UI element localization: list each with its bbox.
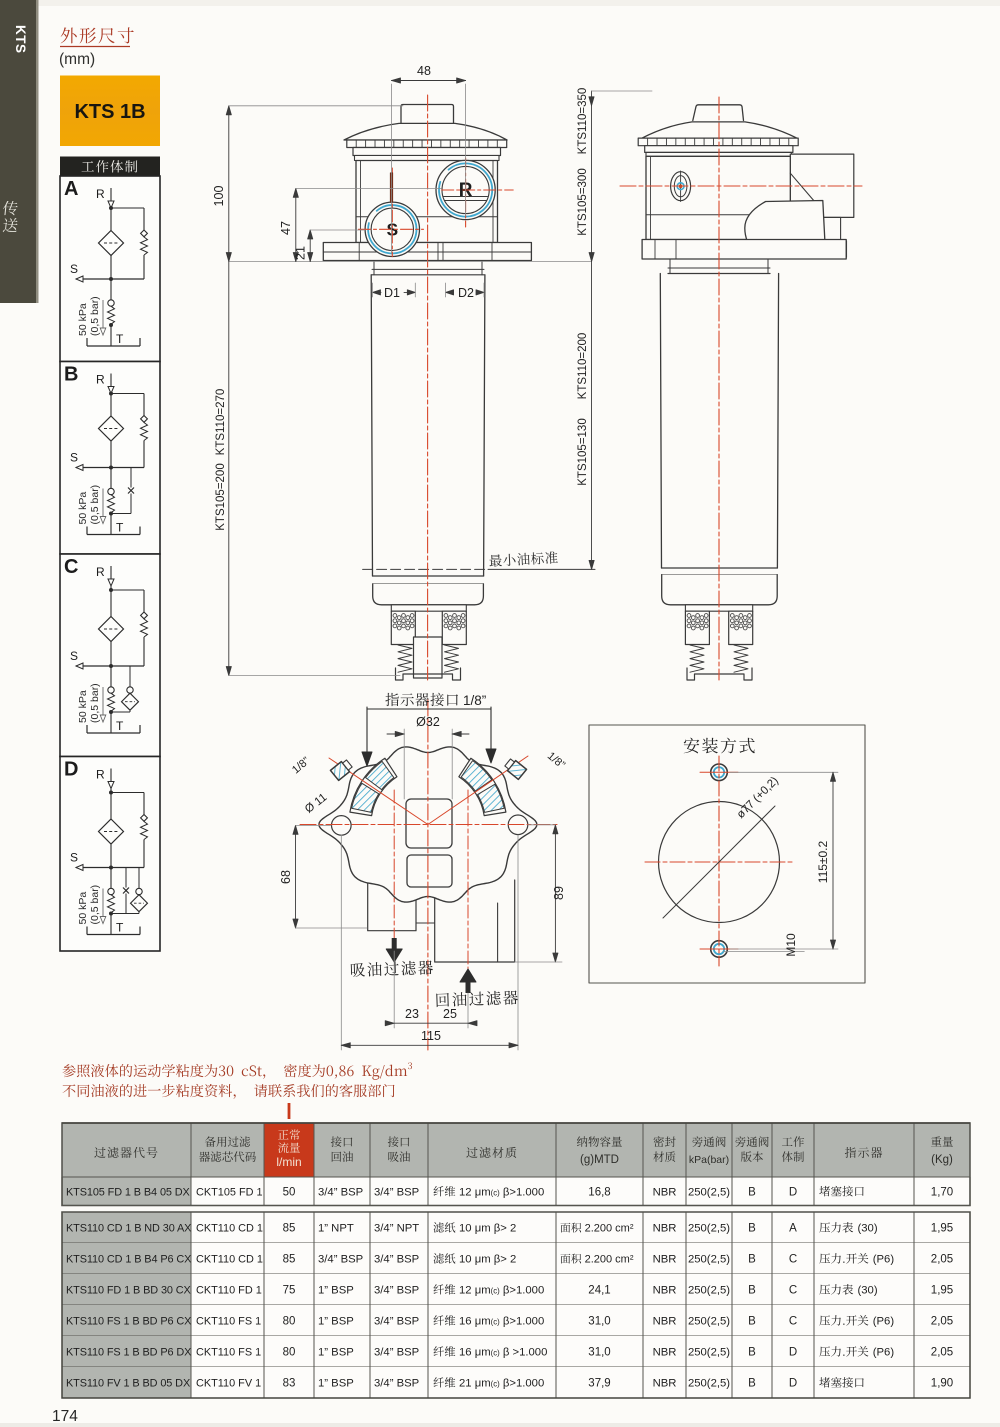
svg-text:(0,5 bar): (0,5 bar) — [89, 296, 101, 336]
svg-text:48: 48 — [417, 64, 431, 78]
svg-text:1” BSP: 1” BSP — [318, 1347, 354, 1359]
svg-text:80: 80 — [283, 1347, 296, 1359]
svg-text:1,90: 1,90 — [931, 1378, 953, 1390]
svg-text:250(2,5): 250(2,5) — [688, 1254, 730, 1266]
svg-text:C: C — [789, 1316, 797, 1328]
svg-text:1” BSP: 1” BSP — [318, 1316, 354, 1328]
svg-text:KTS110 FS 1 B BD P6 DX: KTS110 FS 1 B BD P6 DX — [66, 1347, 192, 1359]
svg-text:NBR: NBR — [653, 1223, 677, 1235]
svg-text:100: 100 — [212, 186, 226, 207]
svg-text:250(2,5): 250(2,5) — [688, 1316, 730, 1328]
svg-text:50 kPa: 50 kPa — [77, 690, 89, 723]
svg-text:3/4” BSP: 3/4” BSP — [374, 1285, 419, 1297]
svg-text:S: S — [70, 262, 78, 276]
svg-text:1” BSP: 1” BSP — [318, 1378, 354, 1390]
svg-text:D: D — [789, 1186, 797, 1198]
svg-text:250(2,5): 250(2,5) — [688, 1378, 730, 1390]
svg-text:(Kg): (Kg) — [931, 1154, 953, 1166]
svg-text:16,8: 16,8 — [588, 1186, 610, 1198]
svg-text:174: 174 — [52, 1408, 78, 1425]
svg-text:B: B — [748, 1316, 756, 1328]
svg-text:CKT110 CD 1: CKT110 CD 1 — [196, 1223, 263, 1235]
svg-text:3/4” BSP: 3/4” BSP — [374, 1186, 419, 1198]
svg-text:85: 85 — [283, 1223, 296, 1235]
svg-text:250(2,5): 250(2,5) — [688, 1347, 730, 1359]
svg-text:85: 85 — [283, 1254, 296, 1266]
svg-text:KTS 1B: KTS 1B — [74, 101, 145, 123]
svg-text:25: 25 — [443, 1007, 457, 1021]
svg-text:kPa(bar): kPa(bar) — [689, 1154, 729, 1166]
svg-text:21: 21 — [294, 246, 308, 260]
svg-text:R: R — [96, 373, 105, 387]
svg-text:(30): (30) — [858, 1285, 878, 1297]
svg-text:3/4” NPT: 3/4” NPT — [374, 1223, 419, 1235]
svg-text:12 μm(c) β>1.000: 12 μm(c) β>1.000 — [459, 1285, 544, 1297]
svg-text:(0,5 bar): (0,5 bar) — [89, 885, 101, 925]
svg-text:C: C — [64, 556, 78, 578]
svg-text:C: C — [789, 1285, 797, 1297]
svg-text:NBR: NBR — [653, 1285, 677, 1297]
svg-text:2,05: 2,05 — [931, 1254, 953, 1266]
svg-text:3/4” BSP: 3/4” BSP — [374, 1316, 419, 1328]
svg-text:NBR: NBR — [653, 1316, 677, 1328]
svg-text:50: 50 — [283, 1186, 296, 1198]
svg-text:KTS110=350: KTS110=350 — [577, 88, 589, 155]
svg-text:CKT105 FD 1: CKT105 FD 1 — [196, 1186, 263, 1198]
svg-text:D: D — [789, 1378, 797, 1390]
svg-text:(0,5 bar): (0,5 bar) — [89, 485, 101, 525]
svg-text:KTS105=130: KTS105=130 — [577, 418, 589, 485]
svg-text:Ø32: Ø32 — [416, 715, 440, 729]
svg-text:B: B — [748, 1378, 756, 1390]
svg-text:10 μm β> 2: 10 μm β> 2 — [459, 1223, 516, 1235]
svg-text:CKT110 FV 1: CKT110 FV 1 — [196, 1378, 261, 1390]
svg-text:3/4” BSP: 3/4” BSP — [318, 1186, 363, 1198]
svg-text:KTS105 FD 1 B B4 05 DX: KTS105 FD 1 B B4 05 DX — [66, 1186, 191, 1198]
svg-text:10 μm β> 2: 10 μm β> 2 — [459, 1254, 516, 1266]
svg-text:CKT110 CD 1: CKT110 CD 1 — [196, 1254, 263, 1266]
svg-text:31,0: 31,0 — [588, 1347, 610, 1359]
svg-text:3/4” BSP: 3/4” BSP — [318, 1254, 363, 1266]
svg-text:250(2,5): 250(2,5) — [688, 1285, 730, 1297]
svg-text:2,05: 2,05 — [931, 1347, 953, 1359]
svg-text:3/4” BSP: 3/4” BSP — [374, 1378, 419, 1390]
svg-text:(P6): (P6) — [873, 1347, 895, 1359]
svg-text:3/4” BSP: 3/4” BSP — [374, 1254, 419, 1266]
svg-text:115±0.2: 115±0.2 — [816, 840, 830, 883]
svg-text:KTS110 FV 1 B BD 05 DX: KTS110 FV 1 B BD 05 DX — [66, 1378, 191, 1390]
svg-text:(mm): (mm) — [59, 51, 95, 68]
svg-text:S: S — [70, 851, 78, 865]
svg-text:KTS105=200: KTS105=200 — [215, 463, 227, 530]
svg-text:T: T — [116, 521, 124, 535]
svg-text:D2: D2 — [458, 286, 474, 300]
svg-text:KTS110 CD 1 B ND 30 AX: KTS110 CD 1 B ND 30 AX — [66, 1223, 192, 1235]
svg-text:KTS110=270: KTS110=270 — [215, 389, 227, 456]
svg-text:1,95: 1,95 — [931, 1223, 953, 1235]
svg-text:S: S — [70, 649, 78, 663]
svg-text:C: C — [789, 1254, 797, 1266]
svg-text:KTS110=200: KTS110=200 — [577, 333, 589, 400]
svg-text:(P6): (P6) — [873, 1316, 895, 1328]
svg-text:50 kPa: 50 kPa — [77, 492, 89, 525]
svg-text:47: 47 — [279, 221, 293, 235]
svg-text:(g)MTD: (g)MTD — [580, 1154, 619, 1166]
svg-text:KTS110 FS 1 B BD P6 CX: KTS110 FS 1 B BD P6 CX — [66, 1316, 192, 1328]
svg-text:16 μm(c) β >1.000: 16 μm(c) β >1.000 — [459, 1347, 547, 1359]
svg-text:B: B — [64, 364, 78, 386]
svg-text:80: 80 — [283, 1316, 296, 1328]
svg-text:KTS105=300: KTS105=300 — [577, 168, 589, 235]
svg-text:B: B — [748, 1254, 756, 1266]
svg-text:1” NPT: 1” NPT — [318, 1223, 354, 1235]
svg-text:T: T — [116, 332, 124, 346]
svg-text:(30): (30) — [858, 1223, 878, 1235]
svg-text:2.200 cm²: 2.200 cm² — [585, 1223, 634, 1235]
svg-text:75: 75 — [283, 1285, 296, 1297]
svg-text:37,9: 37,9 — [588, 1378, 610, 1390]
svg-text:(P6): (P6) — [873, 1254, 895, 1266]
svg-text:B: B — [748, 1285, 756, 1297]
svg-text:31,0: 31,0 — [588, 1316, 610, 1328]
svg-text:D1: D1 — [384, 286, 400, 300]
svg-text:KTS110 CD 1 B B4 P6 CX: KTS110 CD 1 B B4 P6 CX — [66, 1254, 192, 1266]
svg-text:A: A — [64, 178, 78, 200]
svg-text:(0,5 bar): (0,5 bar) — [89, 683, 101, 723]
svg-text:1” BSP: 1” BSP — [318, 1285, 354, 1297]
svg-text:KTS110 FD 1 B BD 30 CX: KTS110 FD 1 B BD 30 CX — [66, 1285, 192, 1297]
svg-text:CKT110 FD 1: CKT110 FD 1 — [196, 1285, 262, 1297]
svg-text:1/8”: 1/8” — [463, 693, 486, 708]
svg-text:T: T — [116, 921, 124, 935]
svg-text:KTS: KTS — [13, 25, 28, 54]
svg-text:T: T — [116, 719, 124, 733]
svg-text:250(2,5): 250(2,5) — [688, 1186, 730, 1198]
svg-text:S: S — [70, 451, 78, 465]
svg-text:23: 23 — [405, 1007, 419, 1021]
svg-text:16 μm(c) β>1.000: 16 μm(c) β>1.000 — [459, 1316, 544, 1328]
svg-text:M10: M10 — [784, 933, 798, 957]
svg-text:NBR: NBR — [653, 1254, 677, 1266]
svg-text:250(2,5): 250(2,5) — [688, 1223, 730, 1235]
svg-text:68: 68 — [279, 870, 293, 884]
svg-text:A: A — [789, 1223, 797, 1235]
svg-text:R: R — [96, 187, 105, 201]
svg-text:2,05: 2,05 — [931, 1316, 953, 1328]
svg-text:3/4” BSP: 3/4” BSP — [374, 1347, 419, 1359]
svg-text:50 kPa: 50 kPa — [77, 303, 89, 336]
svg-text:115: 115 — [421, 1029, 441, 1043]
svg-text:2.200 cm²: 2.200 cm² — [585, 1254, 634, 1266]
svg-text:24,1: 24,1 — [588, 1285, 610, 1297]
svg-text:R: R — [96, 768, 105, 782]
svg-text:B: B — [748, 1347, 756, 1359]
svg-text:1,95: 1,95 — [931, 1285, 953, 1297]
svg-text:1,70: 1,70 — [931, 1186, 953, 1198]
svg-text:50 kPa: 50 kPa — [77, 892, 89, 925]
svg-text:NBR: NBR — [653, 1378, 677, 1390]
svg-text:D: D — [64, 759, 78, 781]
svg-text:D: D — [789, 1347, 797, 1359]
svg-text:21 μm(c) β>1.000: 21 μm(c) β>1.000 — [459, 1378, 544, 1390]
svg-text:B: B — [748, 1186, 756, 1198]
svg-text:CKT110 FS 1: CKT110 FS 1 — [196, 1316, 261, 1328]
svg-text:12 μm(c) β>1.000: 12 μm(c) β>1.000 — [459, 1186, 544, 1198]
svg-text:NBR: NBR — [653, 1347, 677, 1359]
svg-text:83: 83 — [283, 1378, 296, 1390]
svg-text:89: 89 — [552, 886, 566, 900]
svg-text:R: R — [96, 565, 105, 579]
svg-text:l/min: l/min — [276, 1155, 301, 1169]
svg-text:CKT110 FS 1: CKT110 FS 1 — [196, 1347, 261, 1359]
svg-text:B: B — [748, 1223, 756, 1235]
svg-text:NBR: NBR — [653, 1186, 677, 1198]
